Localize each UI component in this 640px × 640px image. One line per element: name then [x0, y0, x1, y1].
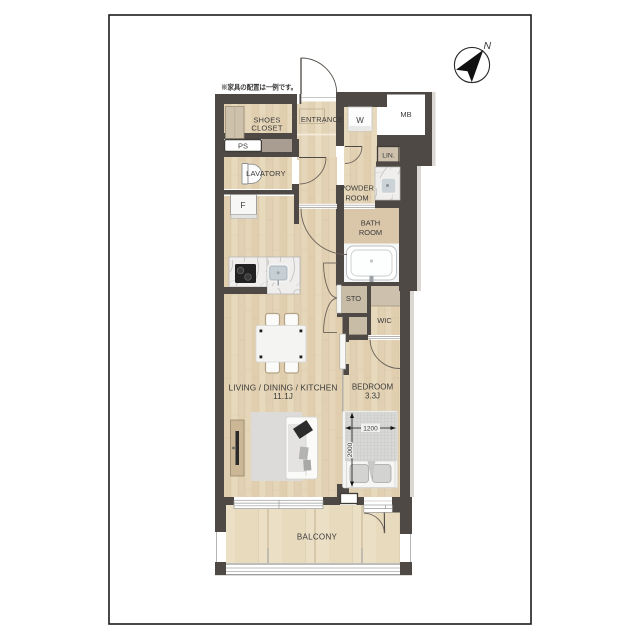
svg-text:WIC: WIC: [377, 316, 392, 325]
svg-text:BEDROOM: BEDROOM: [352, 383, 394, 392]
svg-text:11.1J: 11.1J: [273, 391, 293, 401]
svg-text:BALCONY: BALCONY: [297, 533, 338, 542]
svg-text:ENTRANCE: ENTRANCE: [301, 115, 343, 124]
svg-text:STO: STO: [346, 294, 361, 303]
svg-text:N: N: [484, 40, 492, 52]
svg-text:LAVATORY: LAVATORY: [246, 169, 286, 178]
svg-text:F: F: [240, 200, 245, 210]
svg-text:MB: MB: [400, 110, 411, 119]
svg-text:LIN.: LIN.: [382, 153, 395, 160]
svg-text:※家具の配置は一例です。: ※家具の配置は一例です。: [221, 83, 297, 92]
svg-text:1200: 1200: [363, 425, 378, 432]
svg-text:W: W: [356, 116, 364, 125]
svg-text:CLOSET: CLOSET: [251, 124, 282, 133]
svg-text:BATH: BATH: [361, 219, 380, 228]
svg-text:3.3J: 3.3J: [365, 392, 380, 401]
svg-text:2000: 2000: [347, 442, 354, 457]
svg-text:PS: PS: [238, 142, 248, 151]
svg-text:POWDER: POWDER: [340, 184, 374, 193]
svg-text:ROOM: ROOM: [345, 194, 368, 203]
svg-text:ROOM: ROOM: [359, 228, 382, 237]
